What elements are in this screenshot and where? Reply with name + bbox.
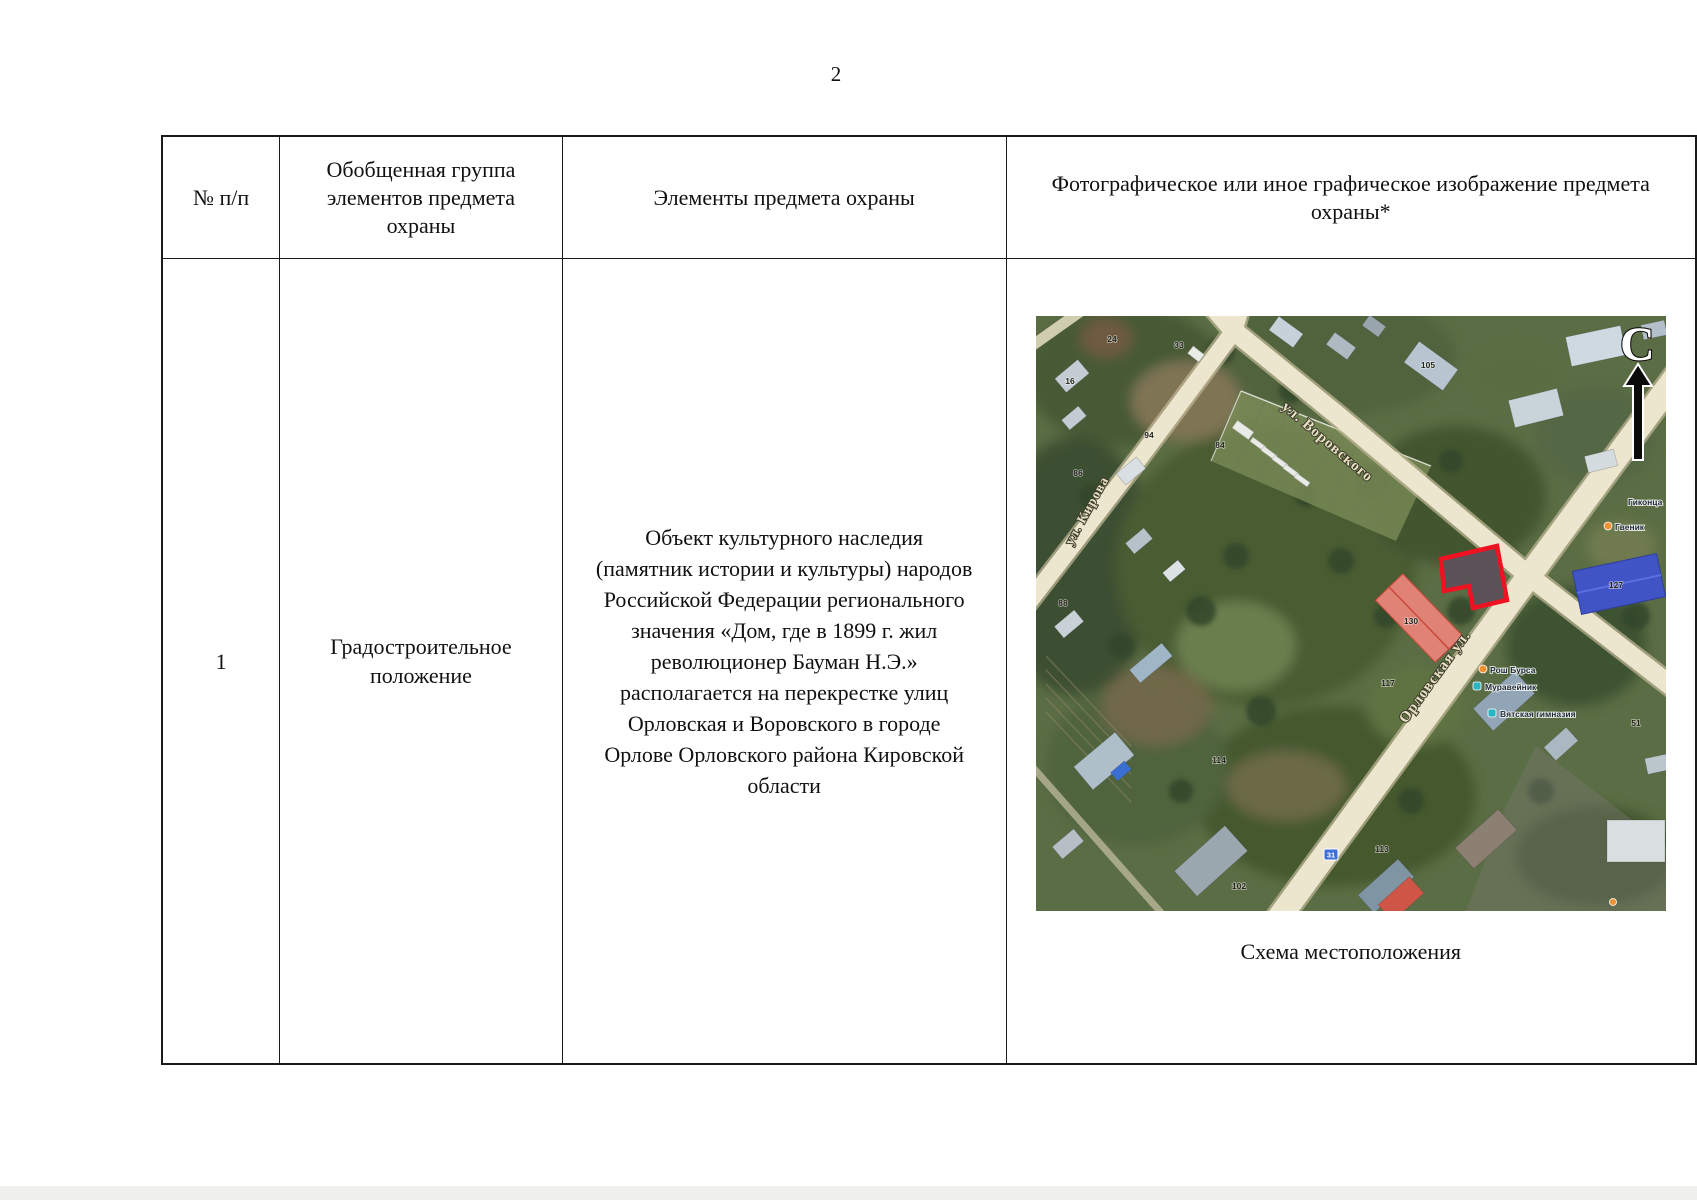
element-text-line: революционер Бауман Н.Э.» bbox=[577, 646, 992, 677]
map-caption: Схема местоположения bbox=[1007, 937, 1695, 966]
header-elements: Элементы предмета охраны bbox=[562, 136, 1006, 259]
house-number: 24 bbox=[1107, 334, 1117, 344]
poi-dot-icon bbox=[1609, 899, 1616, 906]
element-text-line: области bbox=[577, 770, 992, 801]
element-text-line: Объект культурного наследия bbox=[577, 522, 992, 553]
poi-dot-icon bbox=[1479, 665, 1487, 673]
table-header-row: № п/п Обобщенная группа элементов предме… bbox=[162, 136, 1696, 259]
house-number: 130 bbox=[1404, 616, 1418, 626]
house-number: 102 bbox=[1232, 881, 1246, 891]
element-text-line: (памятник истории и культуры) народов bbox=[577, 553, 992, 584]
house-number: 16 bbox=[1065, 376, 1075, 386]
house-number: 88 bbox=[1058, 598, 1068, 608]
house-number: 33 bbox=[1174, 340, 1184, 350]
header-image: Фотографическое или иное графическое изо… bbox=[1006, 136, 1696, 259]
house-number: 86 bbox=[1073, 468, 1083, 478]
cell-group: Градостроительное положение bbox=[280, 259, 563, 1065]
satellite-map: ул. Кирова ул. Воровского Орловская ул. … bbox=[1036, 316, 1666, 911]
house-number: 114 bbox=[1212, 755, 1226, 765]
house-number: 51 bbox=[1631, 718, 1641, 728]
road-sign-31: 31 bbox=[1324, 849, 1338, 860]
house-number: 84 bbox=[1215, 440, 1225, 450]
element-text-line: Орловская и Воровского в городе bbox=[577, 708, 992, 739]
poi-square-icon bbox=[1473, 682, 1481, 690]
road-sign-label: 31 bbox=[1327, 851, 1335, 860]
header-num: № п/п bbox=[162, 136, 280, 259]
element-text-line: значения «Дом, где в 1899 г. жил bbox=[577, 615, 992, 646]
poi-label: Рош Бурса bbox=[1490, 665, 1536, 675]
page-number: 2 bbox=[0, 62, 1672, 87]
poi-label: Гиконца bbox=[1628, 497, 1663, 507]
house-number: 105 bbox=[1421, 360, 1435, 370]
poi-dot-icon bbox=[1604, 522, 1612, 530]
header-group: Обобщенная группа элементов предмета охр… bbox=[280, 136, 563, 259]
element-text-line: располагается на перекрестке улиц bbox=[577, 677, 992, 708]
page-bottom-strip bbox=[0, 1186, 1697, 1200]
house-number: 117 bbox=[1381, 678, 1395, 688]
location-map-image: ул. Кирова ул. Воровского Орловская ул. … bbox=[1036, 316, 1666, 911]
cell-elements: Объект культурного наследия (памятник ис… bbox=[562, 259, 1006, 1065]
cell-image: ул. Кирова ул. Воровского Орловская ул. … bbox=[1006, 259, 1696, 1065]
element-text-line: Орлове Орловского района Кировской bbox=[577, 739, 992, 770]
poi-square-icon bbox=[1488, 709, 1496, 717]
north-letter: С bbox=[1620, 318, 1655, 371]
poi-label: Гвеник bbox=[1615, 522, 1645, 532]
house-number: 94 bbox=[1144, 430, 1154, 440]
poi-label: Муравейник bbox=[1485, 682, 1537, 692]
house-number: 127 bbox=[1609, 580, 1623, 590]
table-row: 1 Градостроительное положение Объект кул… bbox=[162, 259, 1696, 1065]
poi-label: Вятская гимназия bbox=[1500, 709, 1576, 719]
cell-row-number: 1 bbox=[162, 259, 280, 1065]
element-text-line: Российской Федерации регионального bbox=[577, 584, 992, 615]
house-number: 113 bbox=[1375, 844, 1389, 854]
protection-subject-table: № п/п Обобщенная группа элементов предме… bbox=[161, 135, 1697, 1065]
